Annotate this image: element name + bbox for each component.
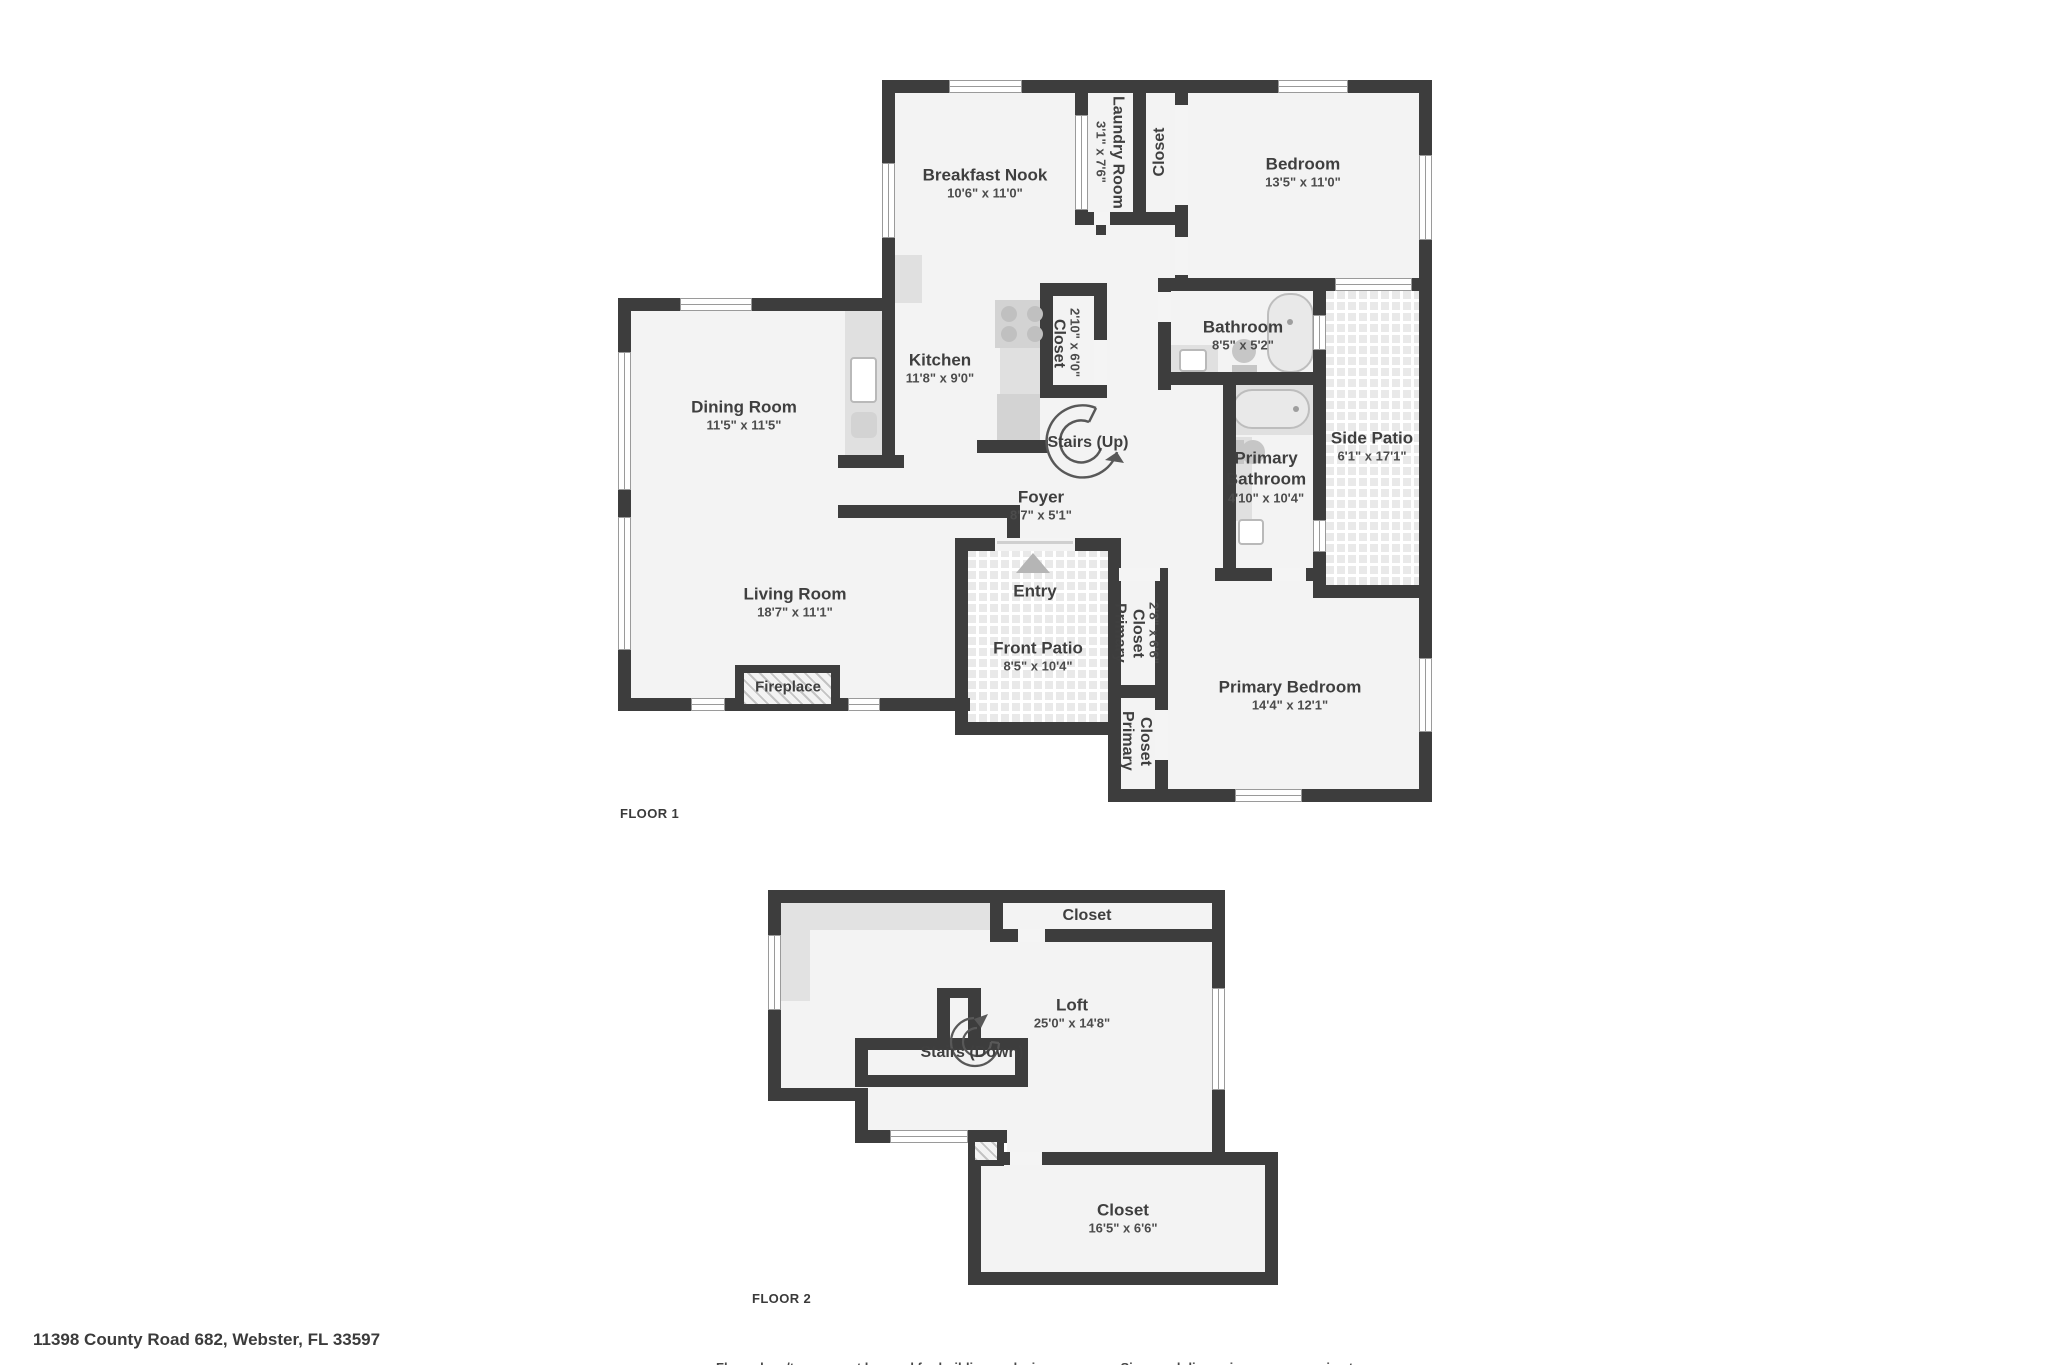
wall-segment [937, 988, 981, 998]
stairs-up-label: Stairs (Up) [1048, 433, 1129, 453]
window [1313, 315, 1326, 350]
window [691, 698, 725, 711]
room-label-loft: Loft 25'0" x 14'8" [1034, 994, 1110, 1032]
room-name: Kitchen [906, 349, 974, 370]
room-label-primary-bathroom: Primary Bathroom 4'10" x 10'4" [1210, 448, 1322, 507]
room-name: Dining Room [691, 396, 797, 417]
room-label-closet-top: Closet [1151, 128, 1169, 177]
window [680, 298, 752, 311]
room-label-front-patio: Front Patio 8'5" x 10'4" [993, 637, 1083, 675]
floor1-label: FLOOR 1 [620, 806, 679, 821]
ceiling-shade [781, 903, 990, 930]
window [1075, 115, 1088, 210]
room-name: Living Room [744, 583, 847, 604]
room-dims: 4'10" x 10'4" [1210, 490, 1322, 506]
room-label-living-room: Living Room 18'7" x 11'1" [744, 583, 847, 621]
wall-segment [1265, 1152, 1278, 1285]
wall-segment [882, 80, 895, 468]
door-opening [1155, 710, 1168, 760]
room-dims: 2'8" x 6'6" [1147, 582, 1162, 684]
room-label-side-patio: Side Patio 6'1" x 17'1" [1331, 427, 1413, 465]
room-dims: 13'5" x 11'0" [1265, 175, 1341, 191]
room-label-kitchen: Kitchen 11'8" x 9'0" [906, 349, 974, 387]
door-opening [1272, 568, 1306, 581]
tub-drain [1293, 406, 1299, 412]
window [768, 935, 781, 1010]
door-opening [995, 538, 1075, 551]
stove-burner [1027, 306, 1043, 322]
window [890, 1130, 968, 1143]
window [1419, 658, 1432, 732]
room-name: Primary Closet [1111, 582, 1147, 684]
floor-plan-canvas: Breakfast Nook 10'6" x 11'0" Laundry Roo… [0, 0, 2048, 1365]
wall-segment [955, 538, 968, 735]
fireplace-label: Fireplace [755, 679, 821, 698]
room-dims: 10'6" x 11'0" [923, 186, 1048, 202]
door-opening [1175, 237, 1188, 275]
room-name: Bedroom [1265, 153, 1341, 174]
window [618, 352, 631, 490]
wall-segment [768, 1088, 868, 1101]
entry-arrow-icon [1016, 553, 1050, 573]
room-name: Primary Bedroom [1219, 676, 1362, 697]
stove-burner [1001, 326, 1017, 342]
disclaimer-text: Floor plans/tour cannot be used for buil… [716, 1360, 1364, 1365]
room-dims: 14'4" x 12'1" [1219, 698, 1362, 714]
room-name: Laundry Room [1109, 72, 1127, 232]
room-name: Foyer [1010, 486, 1072, 507]
window [618, 517, 631, 650]
stove-burner [1001, 306, 1017, 322]
room-name: Closet [1151, 128, 1169, 177]
tub-drain [1287, 319, 1293, 325]
room-label-foyer: Foyer 8'7" x 5'1" [1010, 486, 1072, 524]
door-opening [1018, 929, 1045, 942]
wall-segment [1313, 585, 1432, 598]
room-name: Loft [1034, 994, 1110, 1015]
door-opening [1119, 568, 1160, 581]
chimney-hatch [975, 1142, 997, 1160]
room-dims: 8'5" x 10'4" [993, 659, 1083, 675]
wall-segment [618, 298, 895, 311]
window [1335, 278, 1412, 291]
stove-burner [1027, 326, 1043, 342]
property-address: 11398 County Road 682, Webster, FL 33597 [33, 1330, 380, 1350]
room-name: Entry [1013, 580, 1056, 601]
window [1419, 155, 1432, 240]
door-opening [1094, 340, 1107, 385]
entry-label: Entry [1013, 580, 1056, 601]
room-name: Closet [1088, 1199, 1157, 1220]
room-dims: 11'5" x 11'5" [691, 418, 797, 434]
room-name: Bathroom [1203, 316, 1283, 337]
room-name: Closet [1050, 268, 1068, 418]
floor-plan-geometry [0, 0, 2048, 1365]
room-name: Stairs (Up) [1048, 433, 1129, 453]
room-label-closet-fl2-top: Closet [1063, 906, 1112, 926]
wall-segment [1133, 80, 1146, 225]
room-dims: 16'5" x 6'6" [1088, 1221, 1157, 1237]
window [1313, 520, 1326, 552]
room-name: Closet [1063, 906, 1112, 926]
wall-segment [955, 722, 1121, 735]
room-dims: 8'7" x 5'1" [1010, 508, 1072, 524]
room-dims: 18'7" x 11'1" [744, 605, 847, 621]
ceiling-shade [781, 903, 810, 1001]
wall-segment [968, 1272, 1278, 1285]
room-name: Side Patio [1331, 427, 1413, 448]
window [949, 80, 1022, 93]
primary-sink [1238, 519, 1264, 545]
refrigerator [997, 394, 1040, 440]
room-name: Fireplace [755, 679, 821, 698]
wall-segment [855, 1075, 1028, 1087]
room-label-bedroom: Bedroom 13'5" x 11'0" [1265, 153, 1341, 191]
floor2-label: FLOOR 2 [752, 1291, 811, 1306]
room-label-closet-fl2-bottom: Closet 16'5" x 6'6" [1088, 1199, 1157, 1237]
room-dims: 25'0" x 14'8" [1034, 1016, 1110, 1032]
room-label-primary-bedroom: Primary Bedroom 14'4" x 12'1" [1219, 676, 1362, 714]
room-name: Primary Closet [1118, 690, 1154, 792]
room-dims: 2'10" x 6'0" [1068, 268, 1083, 418]
room-dims: 11'8" x 9'0" [906, 371, 974, 387]
dishwasher [851, 412, 877, 438]
room-dims: 8'5" x 5'2" [1203, 338, 1283, 354]
room-label-laundry-room: Laundry Room 3'1" x 7'6" [1094, 72, 1127, 232]
room-dims: 3'1" x 7'6" [1094, 72, 1109, 232]
room-name: Breakfast Nook [923, 164, 1048, 185]
wall-segment [1075, 212, 1188, 225]
room-label-closet-mid: Closet 2'10" x 6'0" [1050, 268, 1083, 418]
room-floor [868, 1088, 1212, 1130]
room-name: Front Patio [993, 637, 1083, 658]
room-label-dining-room: Dining Room 11'5" x 11'5" [691, 396, 797, 434]
counter [895, 255, 922, 303]
kitchen-sink [850, 357, 877, 403]
door-opening [1158, 292, 1171, 322]
room-label-primary-closet-2: Primary Closet [1118, 690, 1154, 792]
room-label-primary-closet-1: Primary Closet 2'8" x 6'6" [1111, 582, 1162, 684]
room-dims: 6'1" x 17'1" [1331, 449, 1413, 465]
wall-segment [838, 455, 904, 468]
stairs-down-label: Stairs (Down) [920, 1043, 1023, 1063]
wall-segment [968, 1152, 981, 1285]
window [1235, 789, 1302, 802]
wall-segment [1158, 372, 1326, 385]
room-label-breakfast-nook: Breakfast Nook 10'6" x 11'0" [923, 164, 1048, 202]
wall-segment [1215, 568, 1326, 581]
entry-door-line [997, 541, 1073, 544]
room-name: Stairs (Down) [920, 1043, 1023, 1063]
wall-segment [855, 1038, 868, 1087]
room-label-bathroom: Bathroom 8'5" x 5'2" [1203, 316, 1283, 354]
door-opening [1175, 105, 1188, 205]
window [848, 698, 880, 711]
door-opening [1010, 1152, 1042, 1165]
window [882, 163, 895, 238]
room-name: Primary Bathroom [1210, 448, 1322, 491]
wall-segment [838, 505, 1020, 518]
room-floor [1117, 385, 1223, 581]
window [1278, 80, 1348, 93]
window [1212, 988, 1225, 1090]
